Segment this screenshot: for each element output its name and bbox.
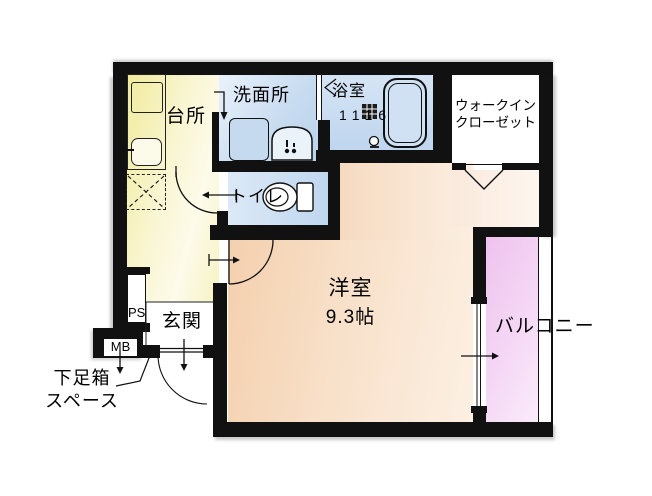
entrance-label: 玄関 — [162, 311, 202, 333]
main-room-label-group: 洋室 9.3帖 — [228, 277, 473, 329]
meter-box: MB — [103, 338, 138, 357]
kitchen-label: 台所 — [166, 106, 206, 128]
floor-plan: PS MB — [0, 0, 652, 496]
wall-washroom-bottom — [212, 161, 330, 172]
room-main — [228, 240, 473, 422]
wall-entry-jamb-left — [143, 345, 160, 358]
wall-ps-top — [113, 267, 150, 274]
walk-in-closet-label-line1: ウォークイン — [452, 98, 539, 115]
main-room-label: 洋室 — [228, 277, 473, 301]
wall-right — [539, 75, 553, 237]
washroom-label: 洗面所 — [233, 85, 290, 106]
window-jamb-top — [471, 297, 487, 304]
wall-bottom — [213, 422, 553, 437]
wall-left — [113, 75, 127, 332]
wall-balcony-top — [473, 227, 553, 237]
pipe-space-box: PS — [127, 274, 146, 323]
wall-main-left — [213, 283, 227, 422]
wall-toilet-bottom — [210, 225, 330, 240]
entrance-arrow-head — [181, 364, 188, 371]
window-jamb-bottom — [471, 406, 487, 413]
wall-bathroom-bottom — [316, 150, 452, 163]
stove-icon — [131, 82, 163, 113]
wall-washroom-kitchen — [212, 112, 219, 163]
main-room-size-label: 9.3帖 — [228, 307, 473, 329]
wall-balcony-left-upper — [473, 237, 486, 303]
entrance-door-sill — [158, 349, 205, 353]
refrigerator-space — [126, 174, 166, 210]
bathroom-door — [316, 75, 322, 120]
kitchen-sink-icon — [131, 138, 162, 166]
entrance-door-arc — [158, 355, 207, 404]
walk-in-closet-label: ウォークイン クローゼット — [452, 98, 539, 132]
balcony-label: バルコニー — [495, 316, 595, 338]
wall-closet-bottom-right — [502, 163, 539, 170]
wall-closet-bottom-left — [452, 163, 466, 170]
walk-in-closet-label-line2: クローゼット — [452, 115, 539, 132]
wall-entry-jamb-right — [203, 345, 215, 358]
meter-box-label: MB — [104, 340, 137, 355]
pipe-space-label: PS — [128, 306, 145, 321]
bathroom-size-label: 1116 — [339, 107, 392, 123]
bathroom-label: 浴室 — [332, 83, 366, 101]
bathtub-inner — [388, 83, 422, 143]
wall-ps-bottom — [113, 323, 150, 332]
wall-top — [113, 62, 553, 75]
shoe-box-label-line2: スペース — [38, 390, 126, 413]
shoe-box-label: 下足箱 スペース — [38, 367, 126, 414]
toilet-label: トイレ — [230, 187, 284, 207]
washing-machine-pan-icon — [229, 118, 269, 161]
shoe-box-label-line1: 下足箱 — [38, 367, 126, 390]
room-main-closet-side — [452, 170, 539, 227]
balcony-window — [473, 304, 486, 406]
wall-bathroom-right — [433, 74, 452, 163]
